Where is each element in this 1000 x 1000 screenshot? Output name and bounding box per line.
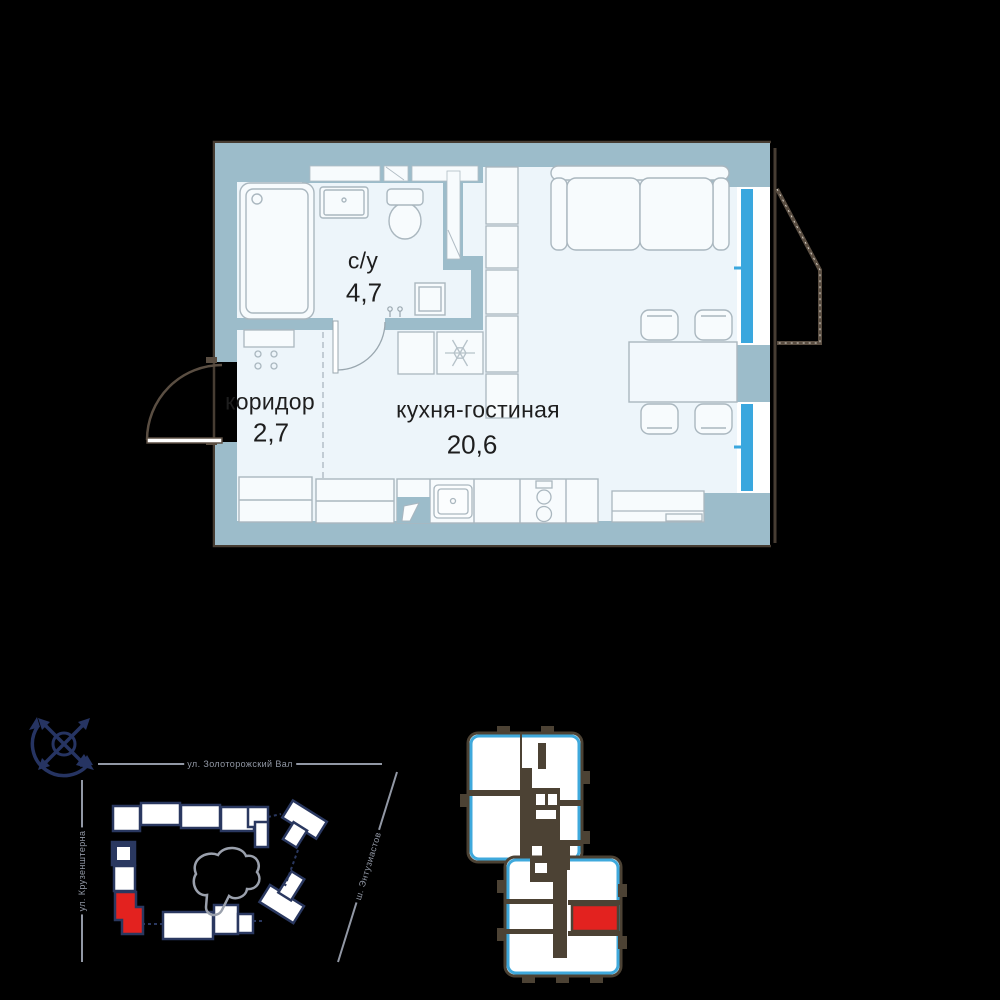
floor-plate-upper-section xyxy=(460,726,590,862)
kitchen-sink xyxy=(434,485,472,518)
window-strip-bottom xyxy=(741,404,753,491)
floor-plate-lower-section xyxy=(497,844,627,983)
site-highlighted-building[interactable] xyxy=(115,892,143,934)
apartment-floor-plan xyxy=(147,142,820,546)
bathtub xyxy=(240,183,314,319)
chair xyxy=(695,310,732,340)
dining-table xyxy=(629,342,737,402)
kitchen-wall-stub xyxy=(397,497,430,523)
vent-shaft xyxy=(447,171,460,259)
entrance-door-arc xyxy=(147,365,222,440)
room-area-bathroom: 4,7 xyxy=(346,278,382,309)
chair xyxy=(641,310,678,340)
floor-plate-plan xyxy=(460,726,627,983)
site-buildings xyxy=(112,801,327,939)
tv-stand xyxy=(612,491,704,522)
room-label-kitchen-living: кухня-гостиная xyxy=(396,397,560,424)
chair xyxy=(641,404,678,434)
window-strip-top xyxy=(741,189,753,343)
highlighted-unit[interactable] xyxy=(572,905,618,931)
room-area-corridor: 2,7 xyxy=(253,418,289,449)
bathroom-sink xyxy=(320,187,368,218)
compass-icon xyxy=(29,717,94,776)
chair xyxy=(695,404,732,434)
toilet xyxy=(387,189,423,239)
balcony-outline xyxy=(777,189,820,343)
plan-canvas xyxy=(0,0,1000,1000)
street-label-top: ул. Золоторожский Вал xyxy=(184,759,296,769)
room-label-corridor: коридор xyxy=(225,389,315,416)
floorplan-page: с/у 4,7 коридор 2,7 кухня-гостиная 20,6 … xyxy=(0,0,1000,1000)
entrance-door-leaf xyxy=(147,438,222,443)
street-label-left: ул. Крузенштерна xyxy=(77,828,87,915)
washing-machine xyxy=(415,283,445,315)
windows xyxy=(734,187,770,493)
sofa xyxy=(551,166,729,250)
room-area-kitchen-living: 20,6 xyxy=(447,430,498,461)
room-label-bathroom: с/у xyxy=(348,248,378,275)
entrance-door xyxy=(147,357,222,445)
